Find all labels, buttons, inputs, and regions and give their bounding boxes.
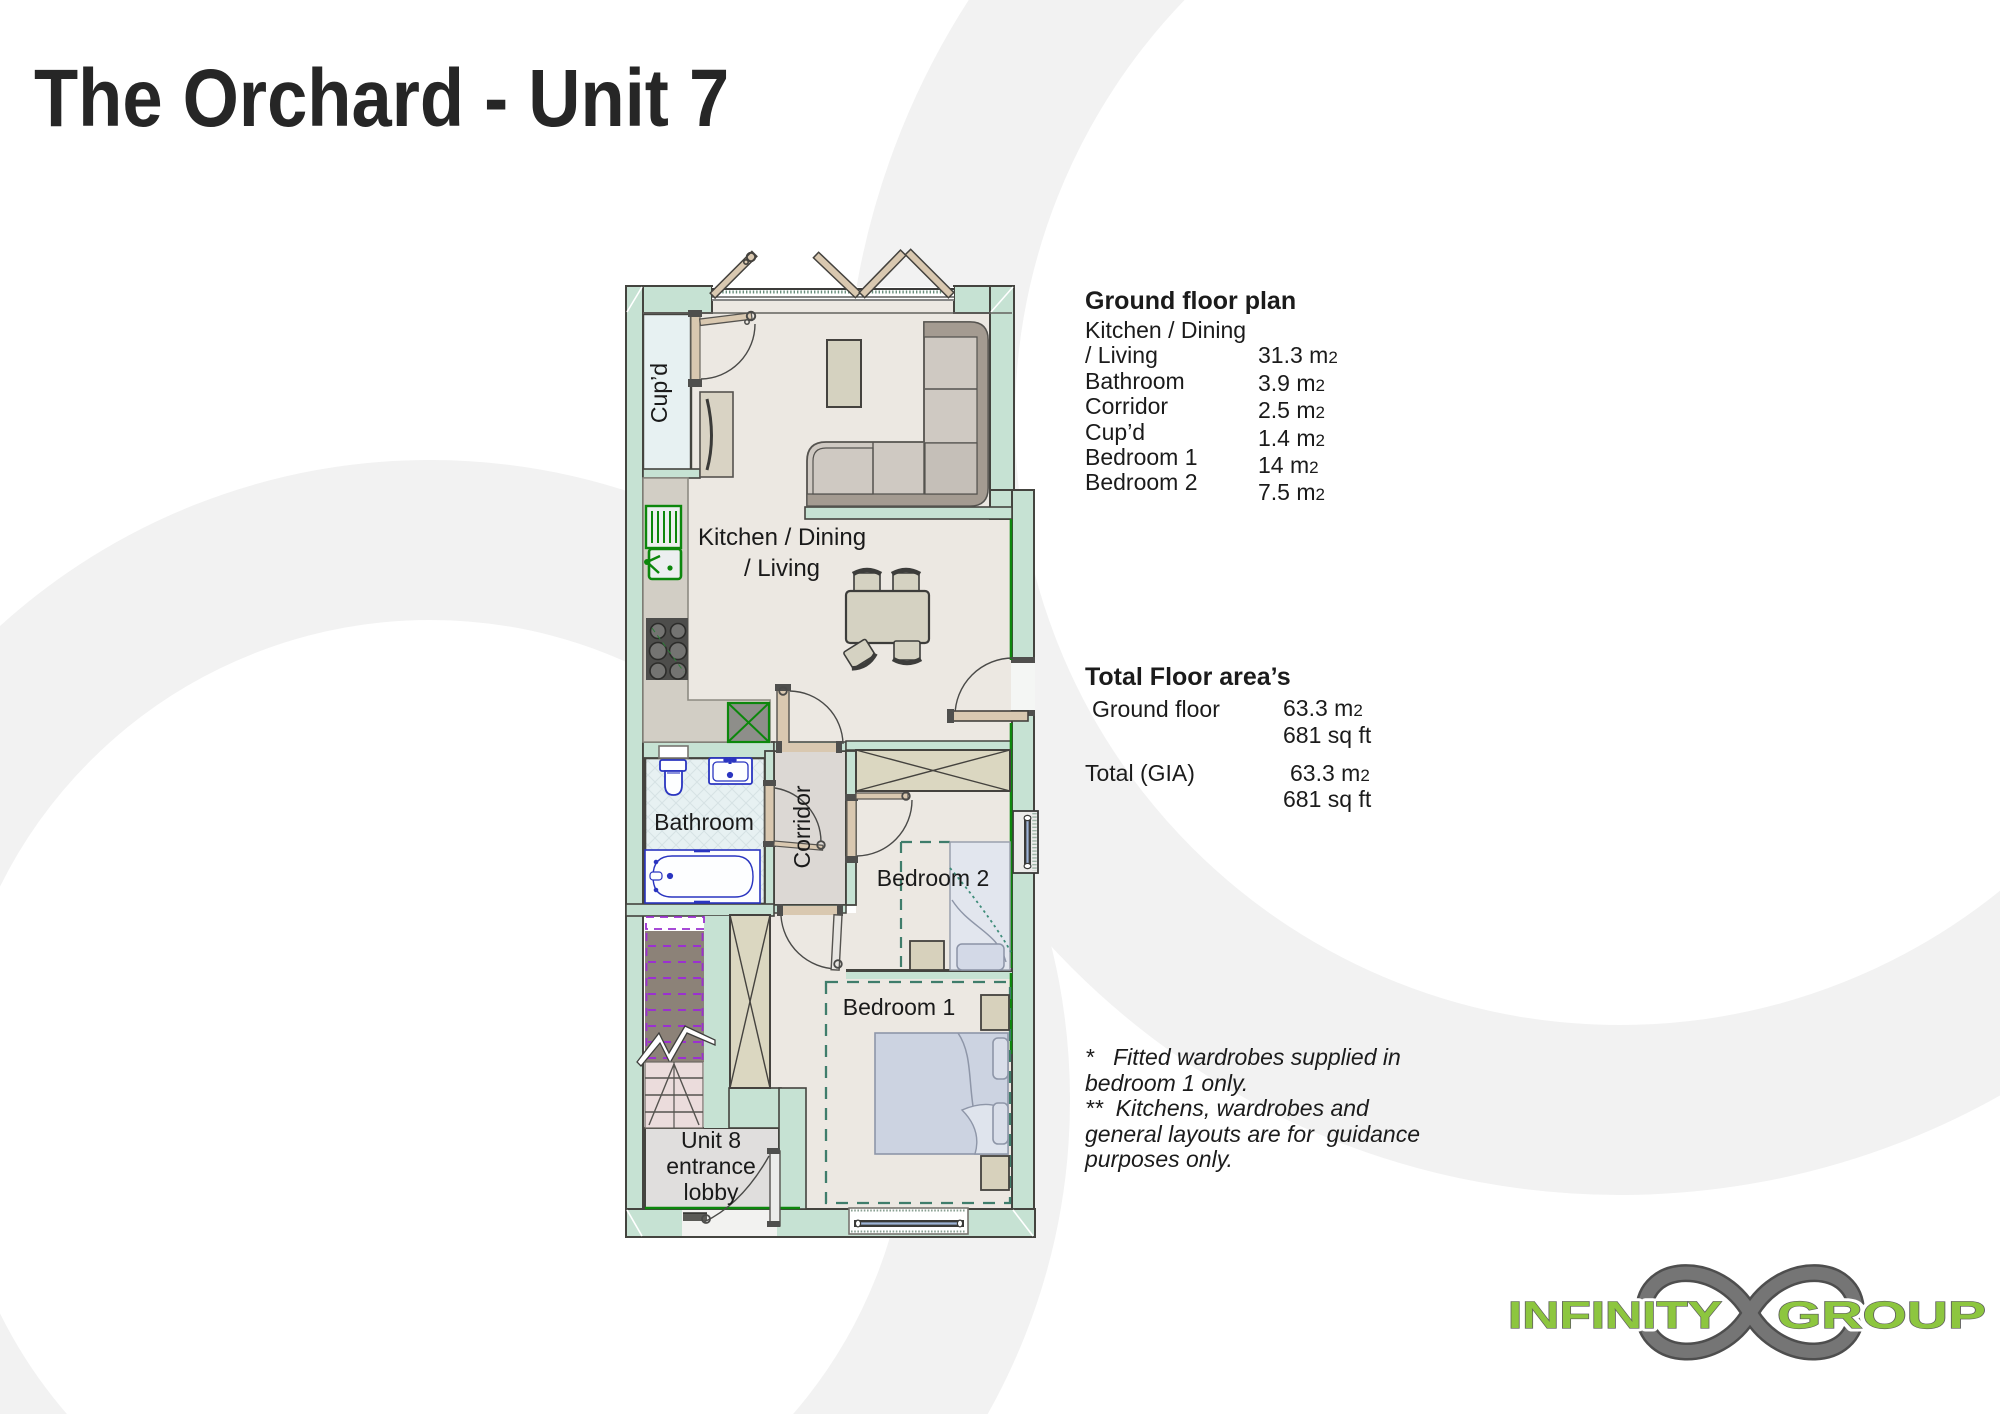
- svg-text:lobby: lobby: [684, 1179, 739, 1205]
- svg-text:Bathroom: Bathroom: [654, 809, 754, 835]
- svg-text:Corridor: Corridor: [789, 785, 815, 868]
- svg-text:/ Living: / Living: [744, 555, 820, 582]
- svg-text:Cup’d: Cup’d: [646, 363, 672, 423]
- svg-text:INFINITY: INFINITY: [1508, 1295, 1722, 1337]
- svg-text:Bedroom 1: Bedroom 1: [843, 994, 956, 1020]
- svg-text:entrance: entrance: [666, 1153, 756, 1179]
- svg-text:Kitchen / Dining: Kitchen / Dining: [698, 524, 866, 551]
- svg-text:Unit 8: Unit 8: [681, 1127, 741, 1153]
- svg-text:Bedroom 2: Bedroom 2: [877, 865, 990, 891]
- svg-text:GROUP: GROUP: [1777, 1295, 1986, 1337]
